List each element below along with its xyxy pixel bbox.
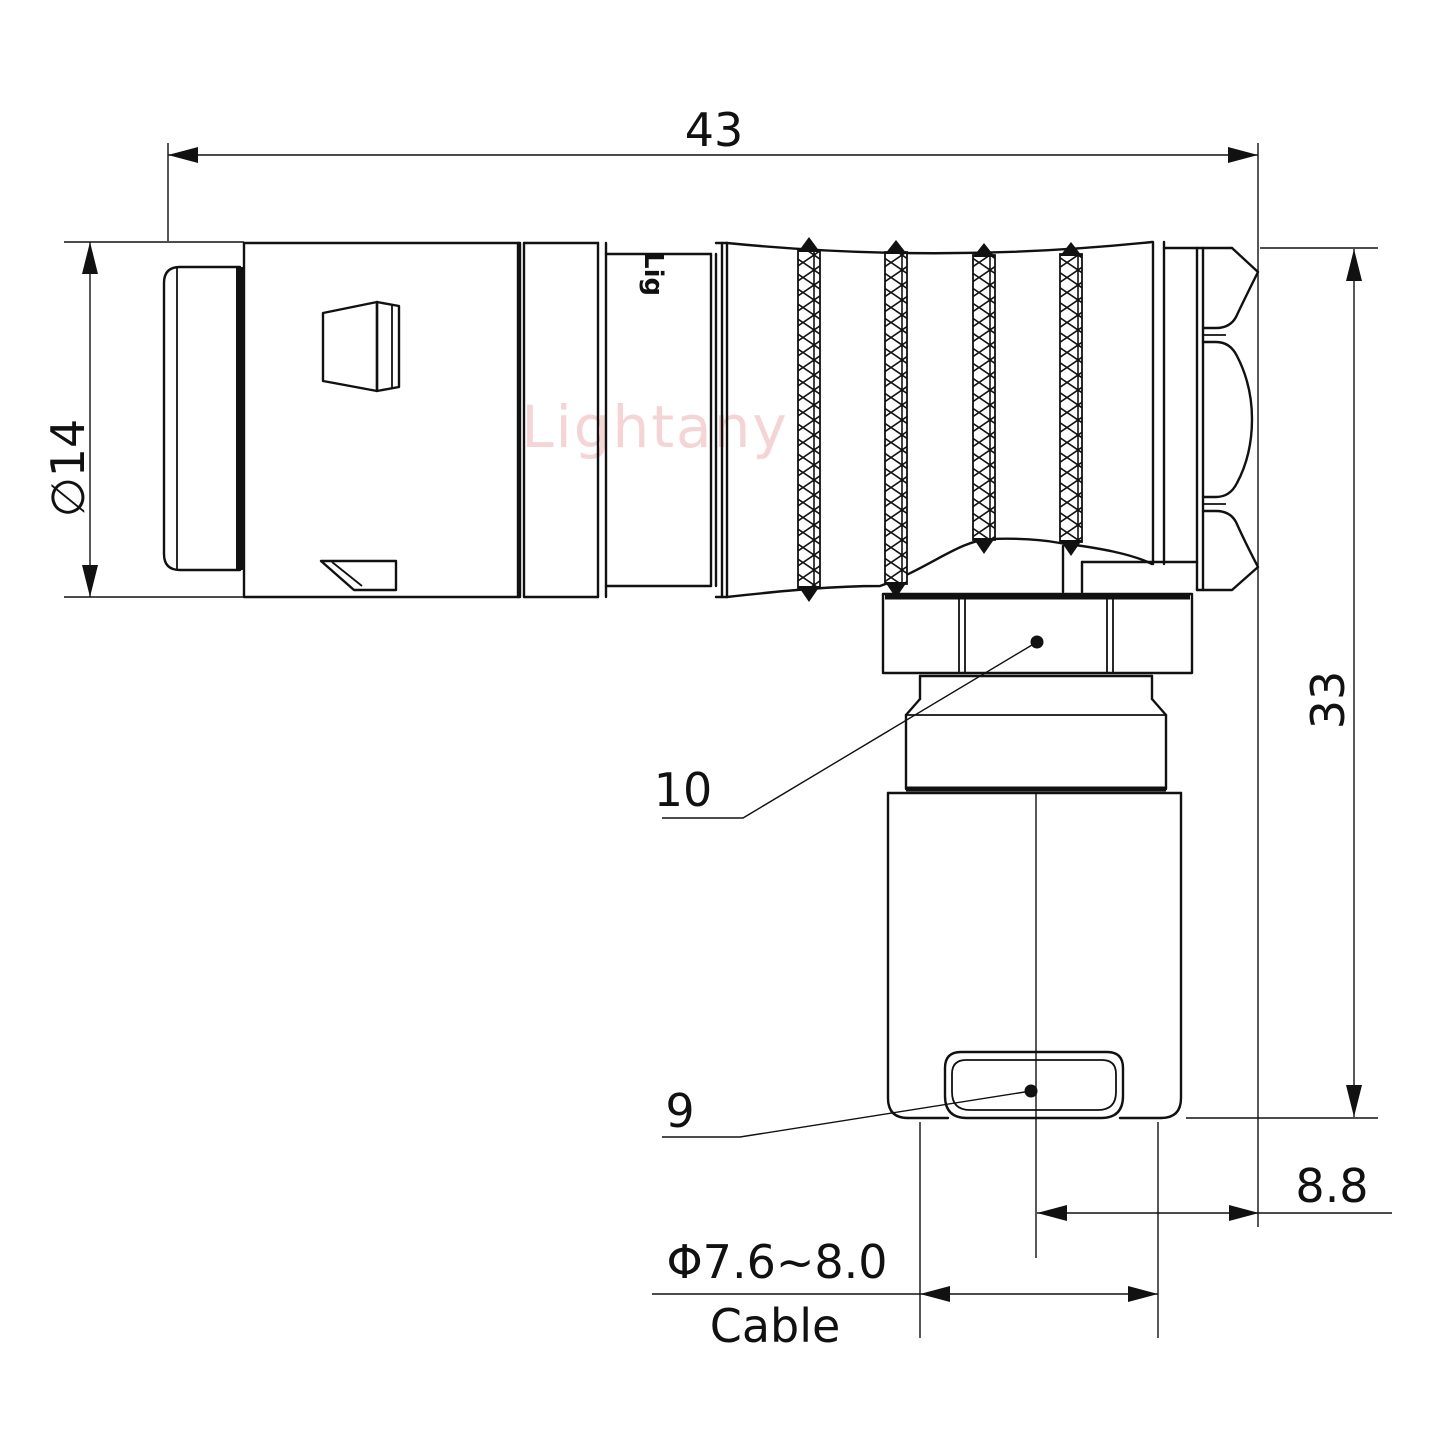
watermark: Lightany — [521, 393, 788, 461]
dim-diameter14-text: ∅14 — [41, 419, 95, 518]
bottom-notch — [321, 561, 396, 590]
dimension-cable: Φ7.6~8.0 Cable — [652, 1122, 1158, 1353]
dimension-overall-length: 43 — [168, 103, 1258, 1227]
label-10-text: 10 — [654, 763, 713, 817]
connector-side-view: Lig — [164, 237, 1258, 602]
technical-drawing-connector-elbow: Lightany — [0, 0, 1440, 1440]
cable-bushing-cylinder — [888, 792, 1181, 1258]
vertical-cable-body — [883, 594, 1192, 1258]
dim-43-text: 43 — [685, 103, 744, 157]
cable-clamp-window — [945, 1052, 1123, 1118]
dimension-height: 33 — [1186, 248, 1378, 1118]
drawing-canvas: Lightany — [0, 0, 1440, 1440]
knurled-barrel — [727, 242, 1164, 597]
dim-cable-word: Cable — [710, 1299, 841, 1353]
dim-cable-diameter-text: Φ7.6~8.0 — [666, 1235, 887, 1289]
dim-33-text: 33 — [1301, 671, 1355, 730]
knurl-band-4 — [1060, 242, 1082, 556]
connector-front-tip — [164, 267, 244, 570]
dimension-rear-offset: 8.8 — [1037, 1159, 1392, 1221]
rear-gland-nut — [1063, 248, 1258, 592]
dim-8-8-text: 8.8 — [1295, 1159, 1368, 1213]
knurl-band-1 — [798, 237, 820, 602]
neck-section — [906, 676, 1166, 789]
dimension-front-diameter: ∅14 — [41, 242, 244, 597]
body-marking-text: Lig — [638, 252, 668, 296]
knurl-band-2 — [885, 240, 907, 598]
part-label-9: 9 — [662, 1084, 1038, 1138]
alignment-key-tab — [323, 302, 399, 391]
hex-coupling-nut — [883, 594, 1192, 673]
knurl-band-3 — [973, 243, 995, 554]
shell-with-key — [244, 243, 520, 597]
label-9-text: 9 — [665, 1084, 694, 1138]
